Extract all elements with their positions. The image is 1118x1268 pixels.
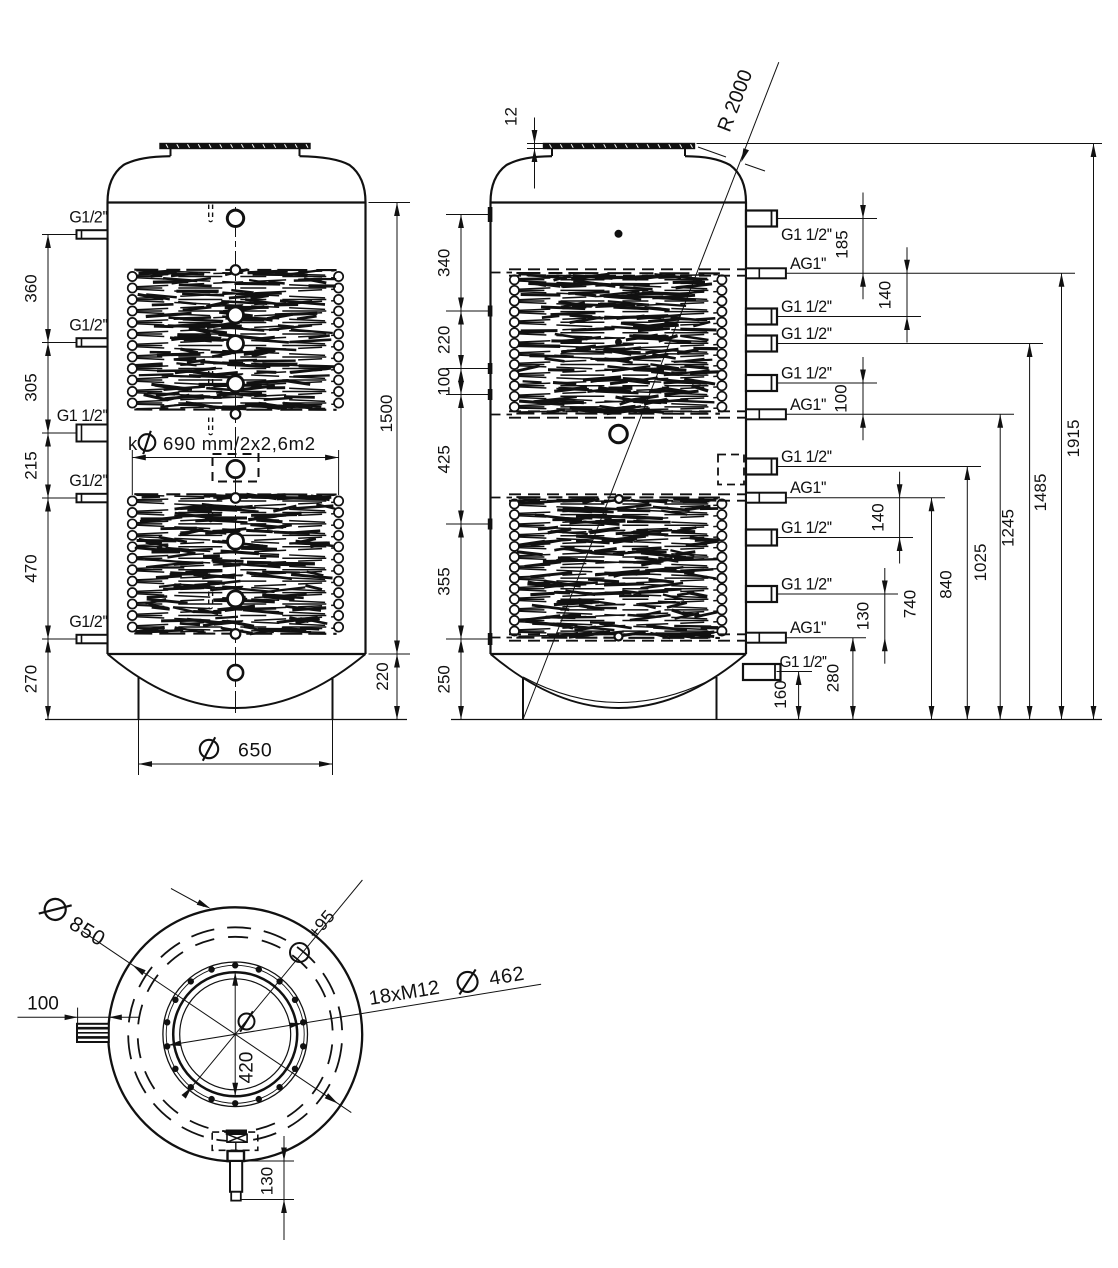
svg-text:160: 160 xyxy=(771,680,790,708)
svg-text:G1/2'': G1/2'' xyxy=(69,317,108,335)
svg-text:340: 340 xyxy=(435,249,454,277)
svg-text:1025: 1025 xyxy=(971,544,990,582)
svg-text:AG1'': AG1'' xyxy=(790,396,826,414)
svg-text:185: 185 xyxy=(833,230,852,258)
svg-text:k: k xyxy=(128,433,138,454)
svg-text:G1 1/2'': G1 1/2'' xyxy=(781,226,832,244)
svg-text:G1/2'': G1/2'' xyxy=(69,613,108,631)
svg-text:12: 12 xyxy=(502,107,521,126)
svg-text:220: 220 xyxy=(373,662,392,690)
svg-text:360: 360 xyxy=(22,274,41,302)
svg-text:G1 1/2'': G1 1/2'' xyxy=(781,298,832,316)
svg-text:1245: 1245 xyxy=(999,509,1018,547)
svg-text:G1 1/2'': G1 1/2'' xyxy=(780,654,828,671)
svg-text:G1/2'': G1/2'' xyxy=(69,209,108,227)
svg-text:100: 100 xyxy=(832,384,851,412)
svg-text:305: 305 xyxy=(22,373,41,401)
svg-text:100: 100 xyxy=(435,367,454,395)
svg-text:840: 840 xyxy=(937,570,956,598)
svg-text:G1 1/2'': G1 1/2'' xyxy=(781,448,832,466)
svg-text:130: 130 xyxy=(854,602,873,630)
svg-text:650: 650 xyxy=(238,740,272,762)
svg-text:420: 420 xyxy=(237,1052,258,1084)
svg-text:1500: 1500 xyxy=(377,395,396,433)
svg-text:G1 1/2'': G1 1/2'' xyxy=(781,576,832,594)
svg-text:140: 140 xyxy=(869,503,888,531)
svg-text:AG1'': AG1'' xyxy=(790,255,826,273)
svg-text:470: 470 xyxy=(22,554,41,582)
svg-text:425: 425 xyxy=(435,445,454,473)
svg-text:G1 1/2'': G1 1/2'' xyxy=(781,325,832,343)
svg-text:690 mm/2x2,6m2: 690 mm/2x2,6m2 xyxy=(163,433,316,454)
svg-text:270: 270 xyxy=(22,665,41,693)
svg-text:G1 1/2'': G1 1/2'' xyxy=(781,365,832,383)
svg-text:1915: 1915 xyxy=(1064,420,1083,458)
svg-text:AG1'': AG1'' xyxy=(790,619,826,637)
svg-text:280: 280 xyxy=(824,664,843,692)
svg-text:220: 220 xyxy=(435,326,454,354)
svg-text:G1/2'': G1/2'' xyxy=(69,472,108,490)
svg-text:740: 740 xyxy=(901,590,920,618)
svg-text:130: 130 xyxy=(258,1167,277,1195)
svg-text:100: 100 xyxy=(27,994,59,1015)
svg-text:AG1'': AG1'' xyxy=(790,479,826,497)
svg-text:355: 355 xyxy=(435,567,454,595)
svg-text:1485: 1485 xyxy=(1031,474,1050,512)
svg-text:G1 1/2'': G1 1/2'' xyxy=(781,519,832,537)
svg-text:215: 215 xyxy=(22,451,41,479)
svg-text:250: 250 xyxy=(435,665,454,693)
svg-text:G1 1/2'': G1 1/2'' xyxy=(57,407,108,425)
svg-text:140: 140 xyxy=(876,281,895,309)
